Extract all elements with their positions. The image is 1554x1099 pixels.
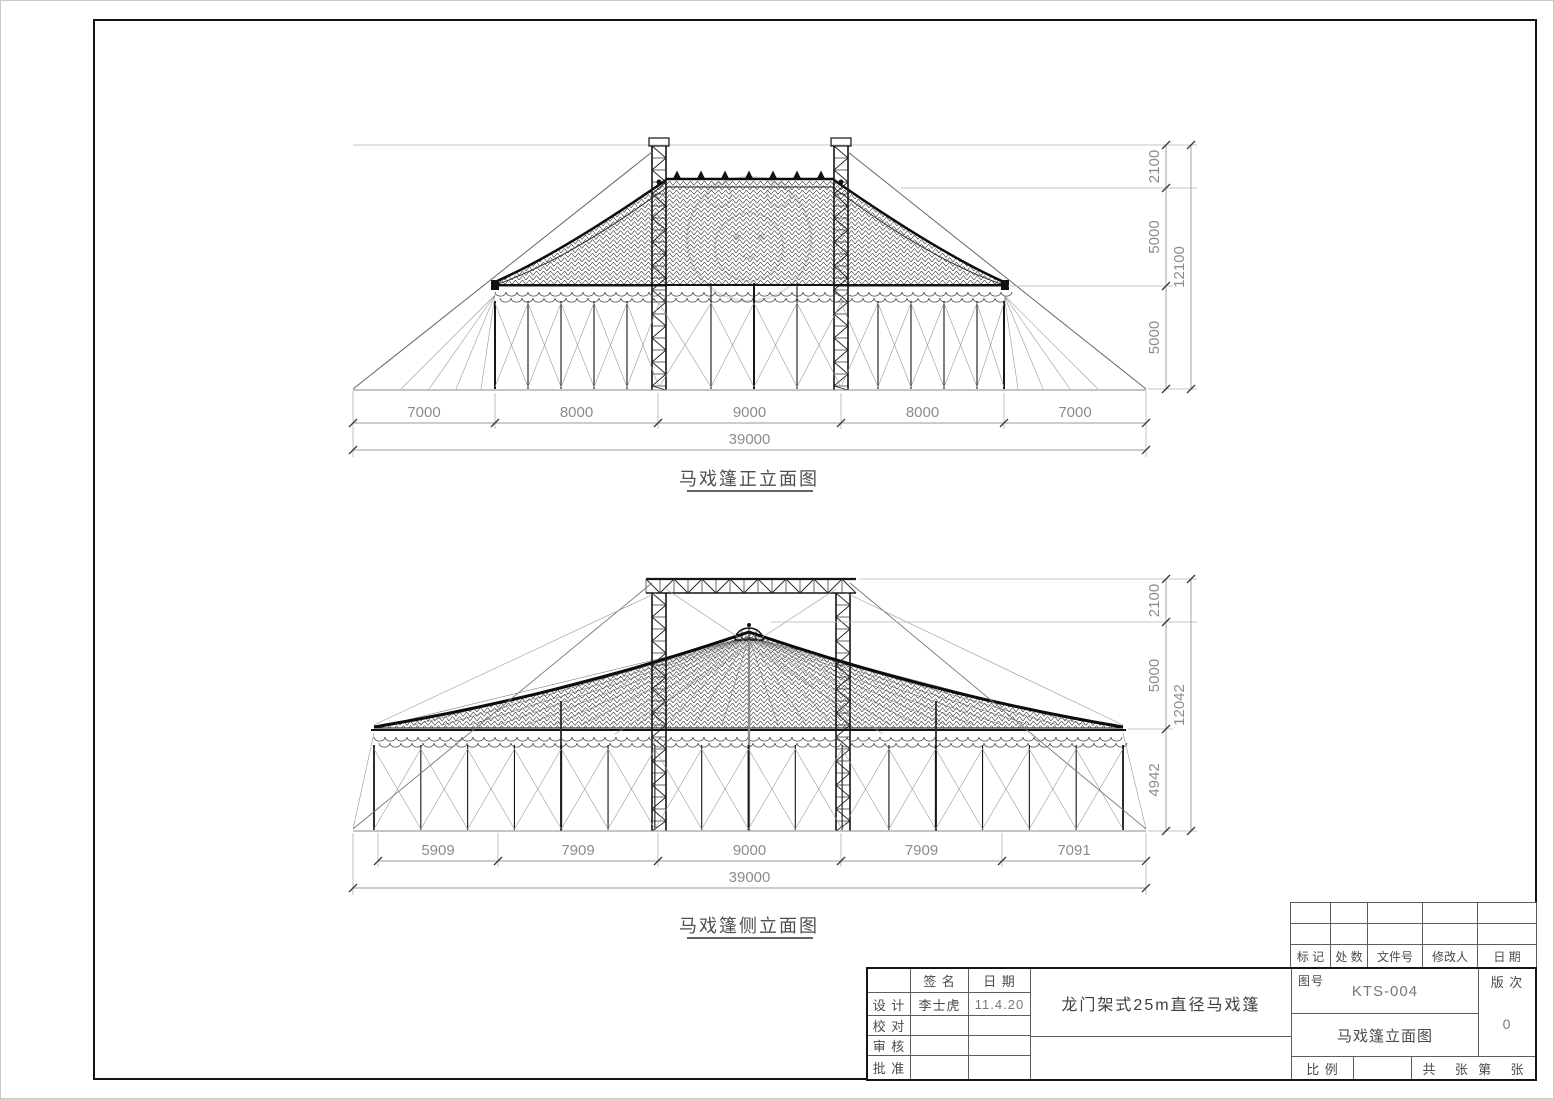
svg-text:7909: 7909 <box>561 842 594 859</box>
check-date <box>969 1016 1031 1036</box>
revision-header-fileno: 文件号 <box>1368 945 1423 968</box>
revision-cell <box>1478 903 1536 924</box>
svg-text:2100: 2100 <box>1146 584 1163 617</box>
title-block-empty-cell <box>868 969 911 993</box>
approve-date <box>969 1056 1031 1079</box>
revision-number-value: 0 <box>1503 991 1512 1056</box>
revision-cell <box>1368 903 1423 924</box>
scale-value-cell <box>1354 1057 1412 1079</box>
revision-header-count: 处 数 <box>1331 945 1368 968</box>
svg-text:12100: 12100 <box>1171 246 1188 288</box>
front-elevation-view: 7000800090008000700039000210050005000121… <box>349 138 1197 491</box>
drawing-number-label: 图号 <box>1298 972 1324 989</box>
drawing-number-cell: 图号 KTS-004 <box>1292 969 1479 1014</box>
svg-text:4942: 4942 <box>1146 763 1163 796</box>
svg-text:7000: 7000 <box>407 404 440 421</box>
revision-cell <box>1423 903 1478 924</box>
side-structure: 5909790990007909709139000210050004942120… <box>349 575 1197 895</box>
revision-header-date: 日 期 <box>1478 945 1536 968</box>
title-block-blank-cell <box>1031 1037 1292 1079</box>
designer-label: 设 计 <box>868 993 911 1016</box>
approver-name <box>911 1056 969 1079</box>
drawing-number-value: KTS-004 <box>1352 983 1418 1000</box>
revision-number-cell: 版 次 0 <box>1479 969 1535 1057</box>
revision-cell <box>1423 924 1478 945</box>
checker-label: 校 对 <box>868 1016 911 1036</box>
svg-text:7909: 7909 <box>905 842 938 859</box>
svg-text:7000: 7000 <box>1058 404 1091 421</box>
front-view-title: 马戏篷正立面图 <box>679 469 819 489</box>
svg-text:5000: 5000 <box>1146 321 1163 354</box>
drawing-sheet: 7000800090008000700039000210050005000121… <box>0 0 1554 1099</box>
svg-text:5909: 5909 <box>421 842 454 859</box>
drawing-name-cell: 马戏篷立面图 <box>1292 1014 1479 1057</box>
review-date <box>969 1036 1031 1056</box>
svg-text:8000: 8000 <box>560 404 593 421</box>
svg-text:5000: 5000 <box>1146 220 1163 253</box>
approver-label: 批 准 <box>868 1056 911 1079</box>
svg-text:12042: 12042 <box>1171 684 1188 726</box>
svg-text:9000: 9000 <box>733 404 766 421</box>
svg-text:7091: 7091 <box>1057 842 1090 859</box>
revision-cell <box>1331 903 1368 924</box>
svg-text:9000: 9000 <box>733 842 766 859</box>
side-elevation-view: 5909790990007909709139000210050004942120… <box>349 575 1197 938</box>
side-view-title: 马戏篷侧立面图 <box>679 916 819 936</box>
revision-header-modifier: 修改人 <box>1423 945 1478 968</box>
designer-name: 李士虎 <box>911 993 969 1016</box>
reviewer-label: 审 核 <box>868 1036 911 1056</box>
revision-table: 标 记 处 数 文件号 修改人 日 期 <box>1290 902 1537 969</box>
svg-text:5000: 5000 <box>1146 659 1163 692</box>
svg-text:39000: 39000 <box>729 431 771 448</box>
revision-cell <box>1291 903 1331 924</box>
revision-cell <box>1478 924 1536 945</box>
revision-cell <box>1291 924 1331 945</box>
sheet-count-cell: 共 张 第 张 <box>1412 1057 1535 1079</box>
design-date: 11.4.20 <box>969 993 1031 1016</box>
scale-label: 比 例 <box>1292 1057 1354 1079</box>
revision-number-label: 版 次 <box>1491 972 1524 991</box>
svg-text:39000: 39000 <box>729 869 771 886</box>
checker-name <box>911 1016 969 1036</box>
revision-cell <box>1368 924 1423 945</box>
reviewer-name <box>911 1036 969 1056</box>
date-column-header: 日 期 <box>969 969 1031 993</box>
signature-column-header: 签 名 <box>911 969 969 993</box>
svg-text:2100: 2100 <box>1146 150 1163 183</box>
project-title: 龙门架式25m直径马戏篷 <box>1031 969 1292 1037</box>
revision-cell <box>1331 924 1368 945</box>
title-block: 签 名 日 期 设 计 李士虎 11.4.20 校 对 审 核 批 准 龙门架式… <box>866 967 1537 1081</box>
svg-text:8000: 8000 <box>906 404 939 421</box>
revision-header-mark: 标 记 <box>1291 945 1331 968</box>
